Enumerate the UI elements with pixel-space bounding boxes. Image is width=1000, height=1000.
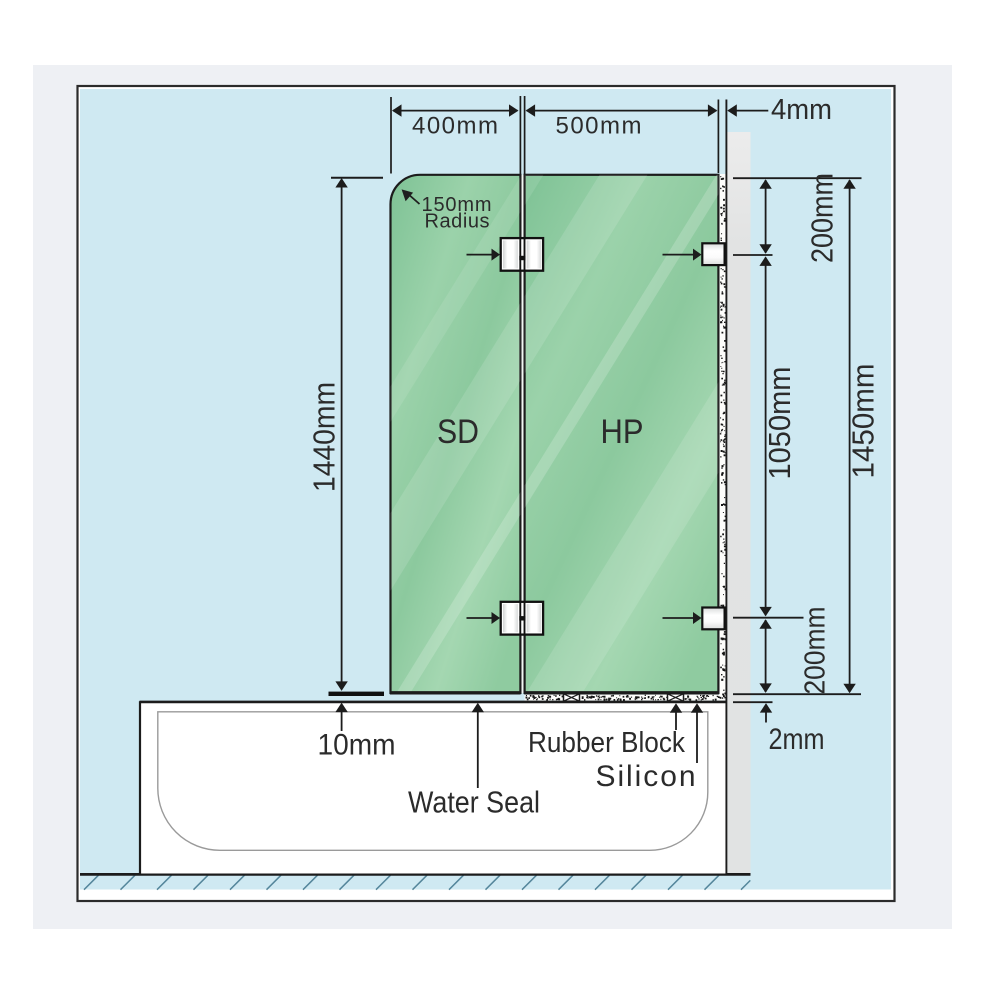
svg-text:1050mm: 1050mm: [762, 367, 797, 480]
svg-text:Rubber Block: Rubber Block: [528, 727, 685, 759]
svg-text:2mm: 2mm: [769, 723, 825, 756]
svg-text:1450mm: 1450mm: [846, 364, 881, 479]
svg-text:SD: SD: [437, 413, 479, 451]
svg-text:Silicon: Silicon: [596, 760, 696, 793]
svg-text:1440mm: 1440mm: [307, 382, 342, 492]
svg-text:200mm: 200mm: [805, 173, 840, 263]
svg-text:Radius: Radius: [425, 211, 490, 233]
svg-text:HP: HP: [601, 413, 644, 451]
svg-text:400mm: 400mm: [412, 113, 498, 140]
svg-text:200mm: 200mm: [800, 607, 832, 695]
svg-text:Water Seal: Water Seal: [408, 785, 540, 820]
svg-text:4mm: 4mm: [771, 94, 832, 126]
svg-text:500mm: 500mm: [556, 113, 642, 140]
svg-text:10mm: 10mm: [318, 729, 396, 762]
